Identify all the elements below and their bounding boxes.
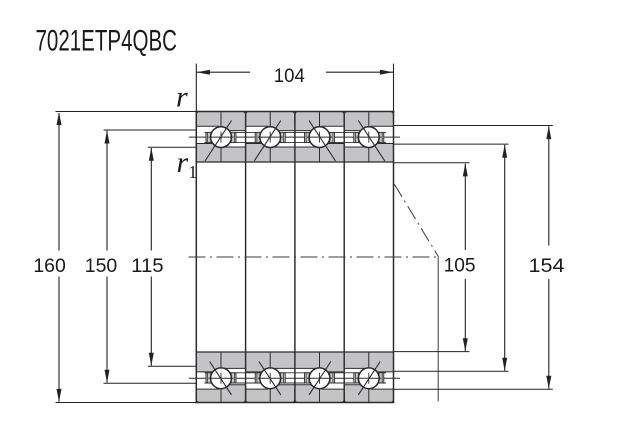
svg-text:r1: r1 — [177, 146, 198, 182]
svg-text:104: 104 — [274, 65, 305, 87]
svg-text:7021ETP4QBC: 7021ETP4QBC — [36, 24, 178, 57]
svg-text:105: 105 — [444, 254, 476, 276]
svg-text:115: 115 — [131, 255, 164, 277]
svg-text:160: 160 — [33, 255, 66, 277]
svg-text:150: 150 — [85, 255, 118, 277]
svg-text:r: r — [176, 80, 188, 113]
svg-text:154: 154 — [529, 255, 565, 277]
